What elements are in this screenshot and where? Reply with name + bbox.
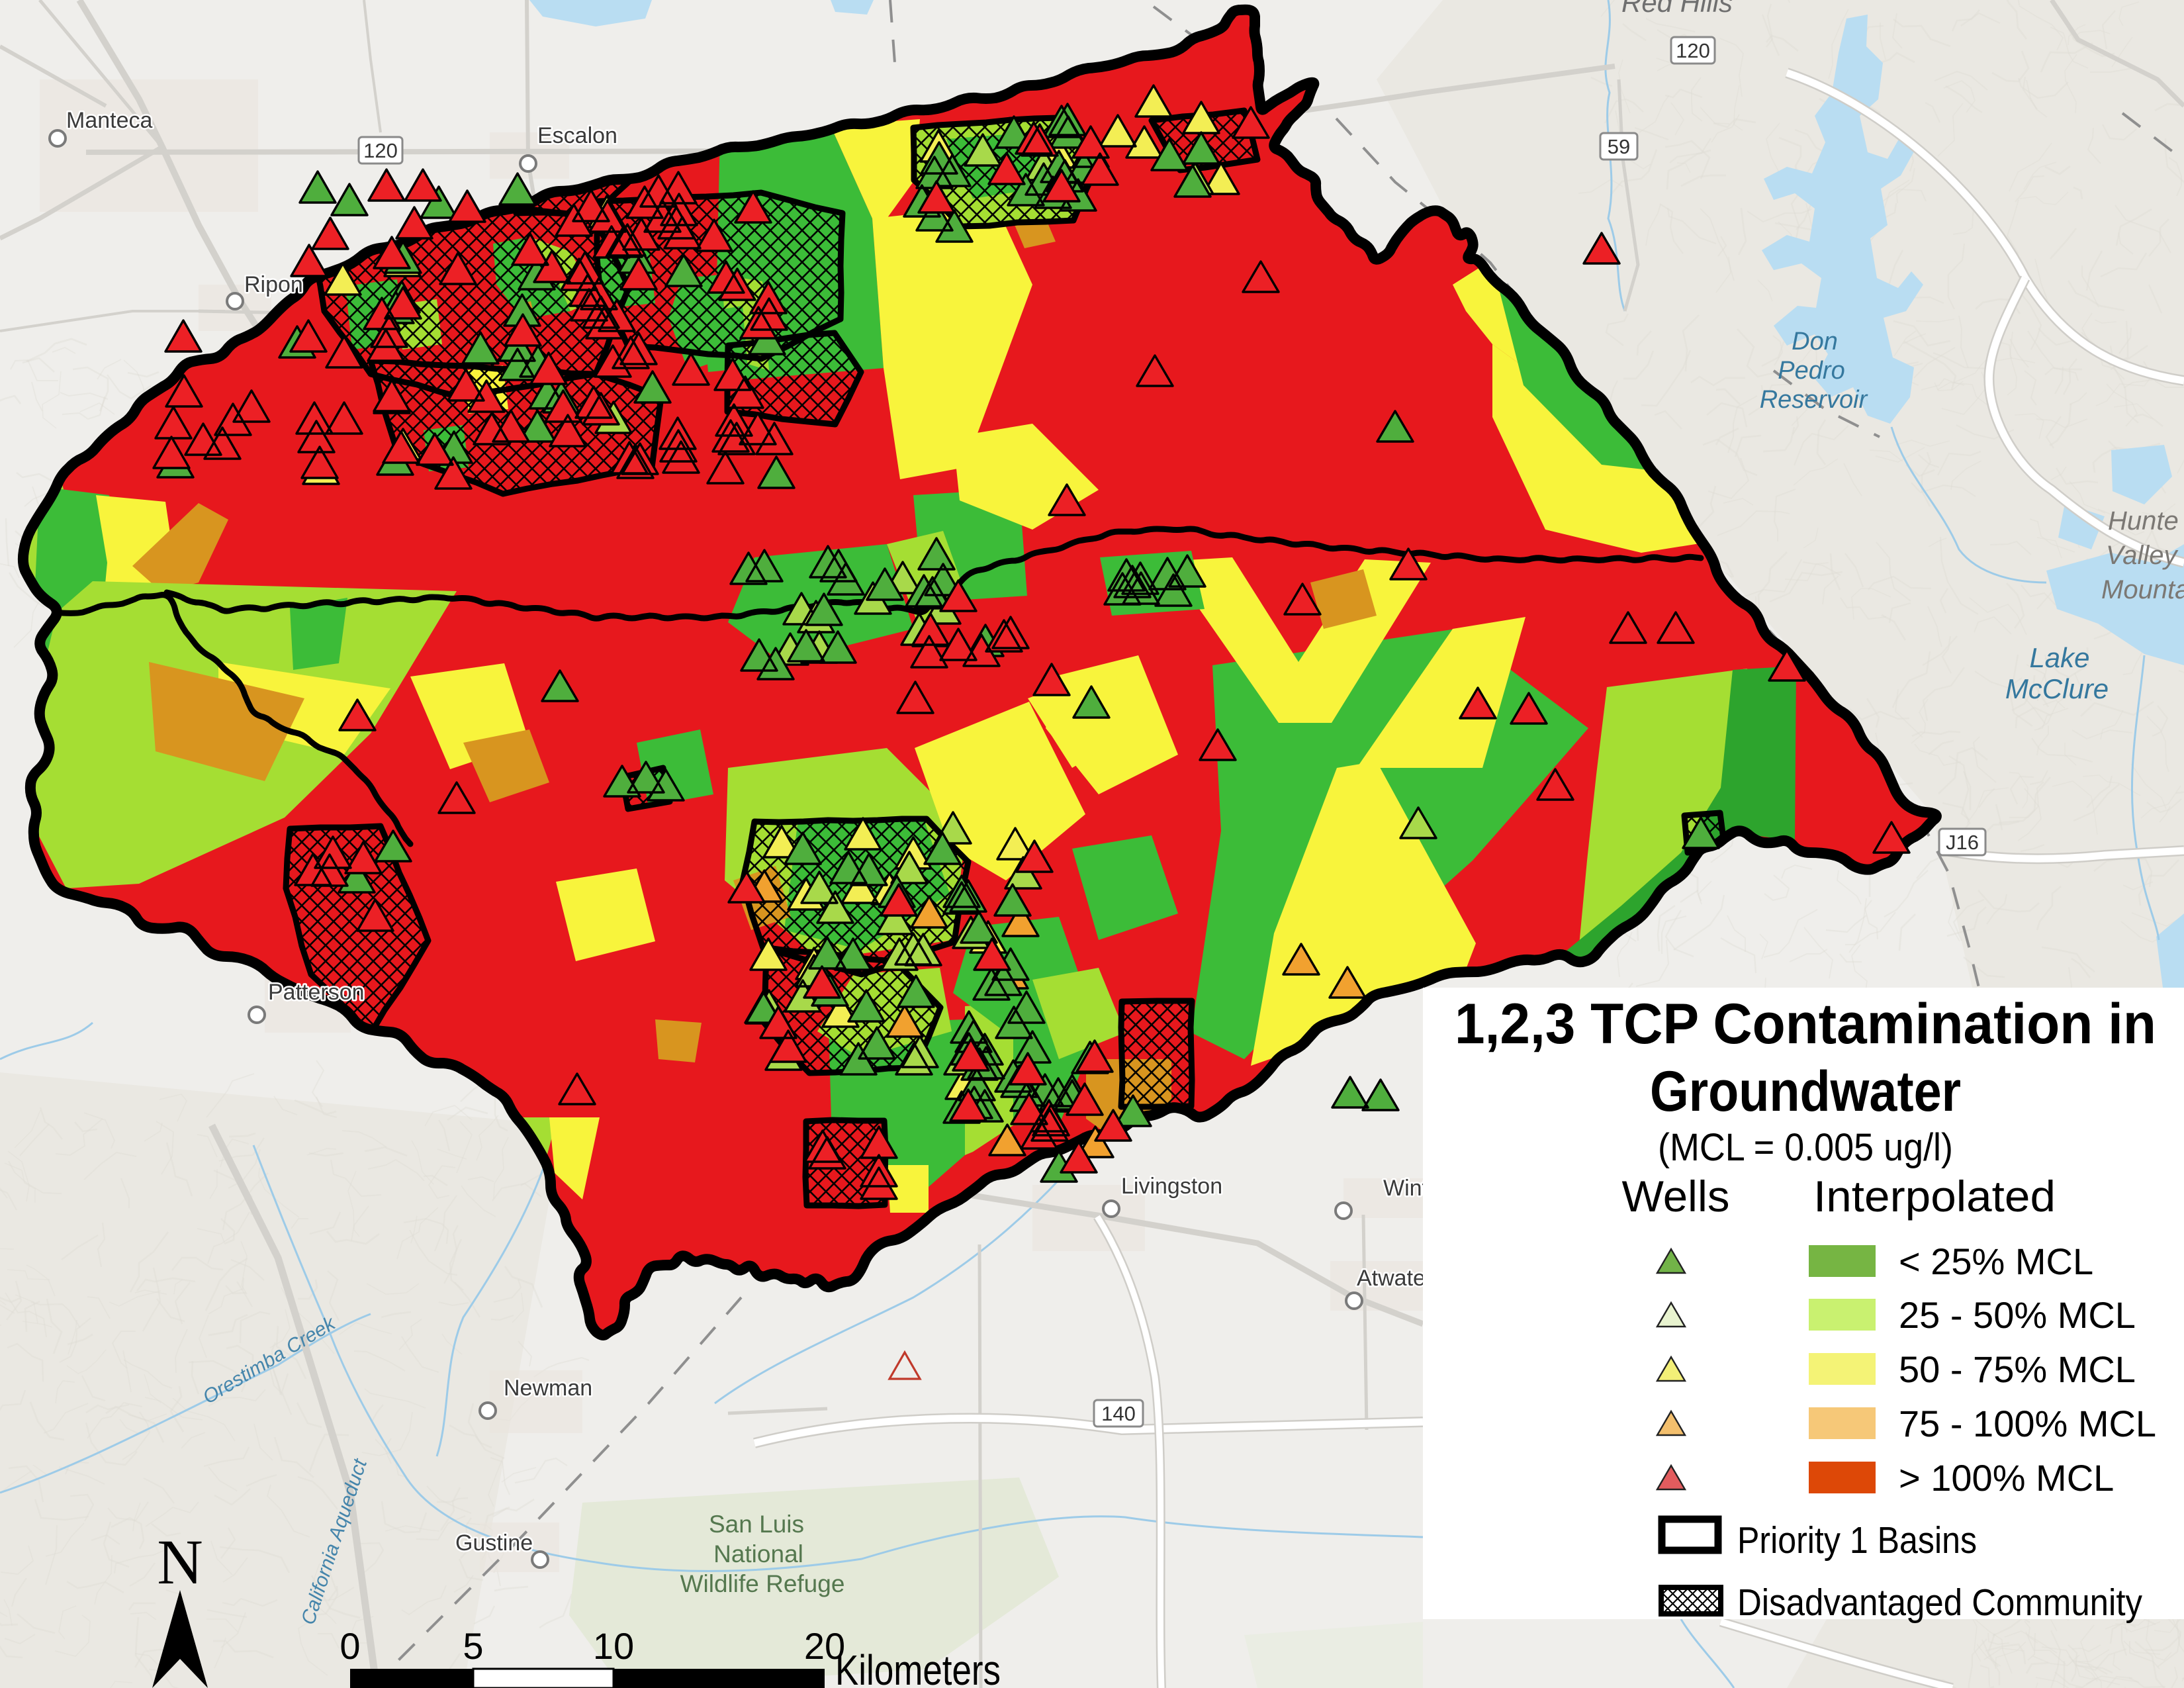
svg-text:Livingston: Livingston bbox=[1121, 1174, 1222, 1199]
svg-text:Interpolated: Interpolated bbox=[1813, 1172, 2056, 1221]
svg-text:N: N bbox=[157, 1526, 203, 1597]
svg-text:Don: Don bbox=[1792, 328, 1838, 355]
svg-text:75 - 100% MCL: 75 - 100% MCL bbox=[1899, 1403, 2156, 1444]
svg-text:National: National bbox=[713, 1540, 803, 1568]
svg-text:Kilometers: Kilometers bbox=[835, 1646, 1001, 1688]
svg-text:Pedro: Pedro bbox=[1778, 357, 1844, 385]
svg-text:Red Hills: Red Hills bbox=[1621, 0, 1733, 18]
svg-text:25 - 50% MCL: 25 - 50% MCL bbox=[1899, 1294, 2136, 1336]
svg-text:Priority 1 Basins: Priority 1 Basins bbox=[1737, 1519, 1977, 1562]
svg-text:J16: J16 bbox=[1946, 831, 1979, 854]
svg-text:1,2,3 TCP Contamination in: 1,2,3 TCP Contamination in bbox=[1455, 992, 2156, 1056]
svg-text:Escalon: Escalon bbox=[537, 123, 617, 148]
svg-text:Ripon: Ripon bbox=[244, 272, 303, 297]
svg-text:McClure: McClure bbox=[2005, 673, 2109, 704]
svg-text:Manteca: Manteca bbox=[66, 108, 152, 133]
svg-text:Reservoir: Reservoir bbox=[1760, 386, 1868, 414]
svg-text:Wells: Wells bbox=[1622, 1172, 1730, 1221]
svg-text:Disadvantaged Community: Disadvantaged Community bbox=[1737, 1581, 2142, 1624]
svg-text:< 25% MCL: < 25% MCL bbox=[1899, 1241, 2093, 1282]
svg-text:59: 59 bbox=[1608, 135, 1630, 158]
svg-text:> 100% MCL: > 100% MCL bbox=[1899, 1457, 2114, 1499]
svg-text:Lake: Lake bbox=[2029, 642, 2089, 673]
svg-text:Patterson: Patterson bbox=[268, 980, 365, 1005]
svg-text:Groundwater: Groundwater bbox=[1650, 1060, 1961, 1123]
svg-text:(MCL = 0.005 ug/l): (MCL = 0.005 ug/l) bbox=[1658, 1126, 1953, 1169]
svg-text:San Luis: San Luis bbox=[709, 1511, 804, 1538]
svg-text:5: 5 bbox=[463, 1625, 483, 1667]
svg-text:Wildlife Refuge: Wildlife Refuge bbox=[680, 1570, 845, 1597]
svg-text:50 - 75% MCL: 50 - 75% MCL bbox=[1899, 1348, 2136, 1390]
svg-text:Newman: Newman bbox=[504, 1376, 592, 1401]
svg-text:Hunte: Hunte bbox=[2108, 506, 2179, 536]
svg-text:Atwater: Atwater bbox=[1357, 1266, 1433, 1291]
svg-text:Mounta: Mounta bbox=[2101, 575, 2184, 604]
svg-text:Valley: Valley bbox=[2106, 541, 2179, 570]
svg-text:10: 10 bbox=[593, 1625, 634, 1667]
svg-text:120: 120 bbox=[1676, 39, 1710, 62]
svg-text:120: 120 bbox=[363, 139, 398, 162]
svg-text:140: 140 bbox=[1101, 1402, 1136, 1425]
svg-text:0: 0 bbox=[340, 1625, 360, 1667]
svg-text:Gustine: Gustine bbox=[455, 1530, 533, 1556]
